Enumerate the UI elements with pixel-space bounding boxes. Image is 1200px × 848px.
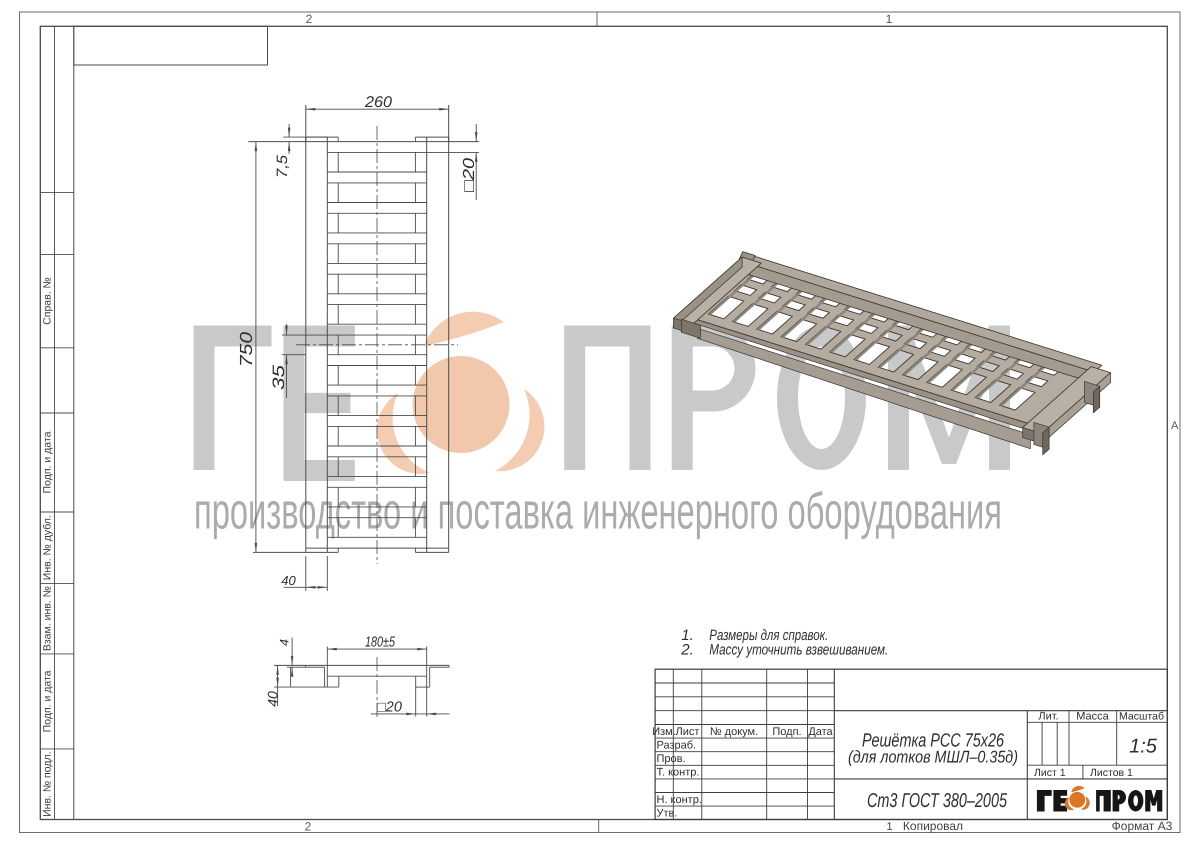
svg-text:260: 260: [364, 94, 392, 111]
svg-text:Лист: Лист: [676, 726, 700, 738]
svg-text:Масштаб: Масштаб: [1119, 711, 1164, 723]
svg-text:Инв. № дубл.: Инв. № дубл.: [42, 515, 54, 580]
svg-text:□20: □20: [461, 158, 478, 192]
svg-text:Утв.: Утв.: [657, 808, 678, 820]
svg-text:Подп. и дата: Подп. и дата: [42, 670, 54, 732]
svg-text:40: 40: [265, 691, 281, 707]
svg-text:□20: □20: [377, 700, 402, 716]
svg-text:Подп.: Подп.: [772, 726, 801, 738]
svg-text:750: 750: [236, 332, 256, 367]
svg-text:Листов 1: Листов 1: [1090, 767, 1133, 779]
svg-text:35: 35: [270, 364, 288, 390]
svg-text:Инв. № подл.: Инв. № подл.: [42, 751, 54, 816]
svg-text:Взам. инв. №: Взам. инв. №: [42, 586, 54, 651]
svg-text:180±5: 180±5: [365, 635, 396, 651]
svg-text:№ докум.: № докум.: [710, 726, 758, 738]
svg-text:1: 1: [886, 12, 893, 26]
svg-text:4: 4: [278, 639, 292, 646]
svg-text:(для лотков МШЛ–0.35д): (для лотков МШЛ–0.35д): [848, 748, 1018, 767]
svg-text:производство и поставка инжене: производство и поставка инженерного обор…: [194, 483, 1002, 540]
svg-text:Ст3 ГОСТ 380–2005: Ст3 ГОСТ 380–2005: [867, 790, 1008, 812]
svg-text:Копировал: Копировал: [903, 819, 963, 833]
svg-text:40: 40: [281, 573, 296, 588]
svg-text:Лист 1: Лист 1: [1034, 767, 1066, 779]
svg-text:Масса: Масса: [1076, 711, 1109, 723]
svg-text:Дата: Дата: [808, 726, 833, 738]
svg-text:Подп. и дата: Подп. и дата: [42, 431, 54, 493]
svg-text:Справ. №: Справ. №: [42, 277, 54, 325]
svg-text:7,5: 7,5: [274, 154, 291, 178]
svg-text:Разраб.: Разраб.: [657, 740, 697, 752]
svg-text:Формат А3: Формат А3: [1112, 819, 1173, 833]
svg-text:2: 2: [306, 12, 313, 26]
svg-text:Лит.: Лит.: [1038, 711, 1058, 723]
svg-text:Массу уточнить взвешиванием.: Массу уточнить взвешиванием.: [709, 641, 888, 658]
svg-text:Пров.: Пров.: [657, 753, 686, 765]
svg-text:1:5: 1:5: [1129, 736, 1158, 758]
svg-text:Н. контр.: Н. контр.: [657, 794, 702, 806]
svg-text:1: 1: [886, 821, 892, 833]
svg-text:А: А: [1171, 420, 1179, 432]
svg-text:Изм.: Изм.: [652, 726, 676, 738]
svg-text:2: 2: [305, 820, 312, 834]
svg-text:2.: 2.: [680, 641, 694, 658]
svg-text:Т. контр.: Т. контр.: [657, 767, 700, 779]
